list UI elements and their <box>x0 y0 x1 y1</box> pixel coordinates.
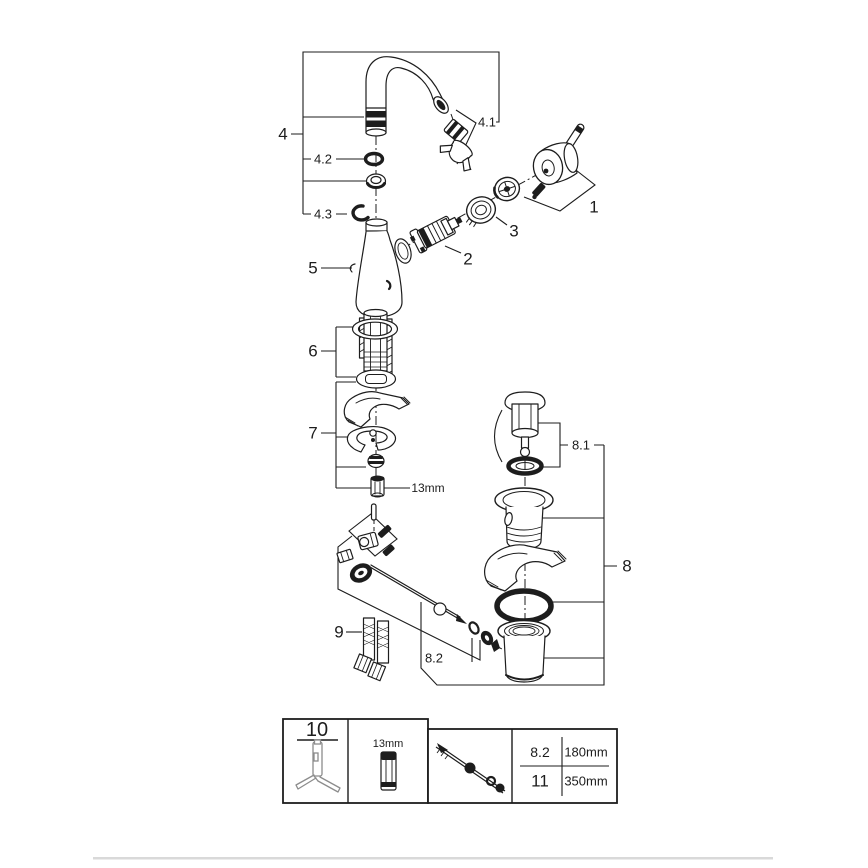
part-label-9: 9 <box>334 623 343 642</box>
sub-label-8-2: 8.2 <box>425 651 443 666</box>
dome-nut-drawing <box>368 455 384 468</box>
table-tool-ref: 10 <box>306 719 328 741</box>
friction-ring <box>357 370 396 388</box>
part-label-8: 8 <box>622 557 631 576</box>
legend-left-box <box>283 719 428 803</box>
sub-label-4-3: 4.3 <box>314 207 332 222</box>
part-label-6: 6 <box>308 342 317 361</box>
threaded-stud-drawing <box>371 476 384 498</box>
part-label-4: 4 <box>278 125 287 144</box>
part-label-7: 7 <box>308 424 317 443</box>
wrench-size-label: 13mm <box>411 481 444 495</box>
bushing-drawing <box>367 174 386 188</box>
shank-assembly-drawing <box>353 310 398 389</box>
exploded-parts-diagram: 4 4.1 4.2 4.3 1 2 3 5 6 7 8 8.1 8.2 9 13… <box>0 0 868 868</box>
part-label-1: 1 <box>589 198 598 217</box>
sub-label-4-1: 4.1 <box>478 115 496 130</box>
table-row1-ref: 8.2 <box>530 744 550 760</box>
legend-table <box>283 719 617 803</box>
table-row2-ref: 11 <box>531 772 549 791</box>
part-label-3: 3 <box>509 222 518 241</box>
parts-diagram-page: 4 4.1 4.2 4.3 1 2 3 5 6 7 8 8.1 8.2 9 13… <box>0 0 868 868</box>
table-row1-length: 180mm <box>564 745 607 760</box>
sub-label-4-2: 4.2 <box>314 152 332 167</box>
socket-adapter-drawing <box>381 752 396 790</box>
footer-divider <box>93 857 773 860</box>
table-socket-size: 13mm <box>373 738 404 750</box>
part-label-2: 2 <box>463 250 472 269</box>
part-label-5: 5 <box>308 259 317 278</box>
table-row2-length: 350mm <box>564 774 607 789</box>
sub-label-8-1: 8.1 <box>572 438 590 453</box>
